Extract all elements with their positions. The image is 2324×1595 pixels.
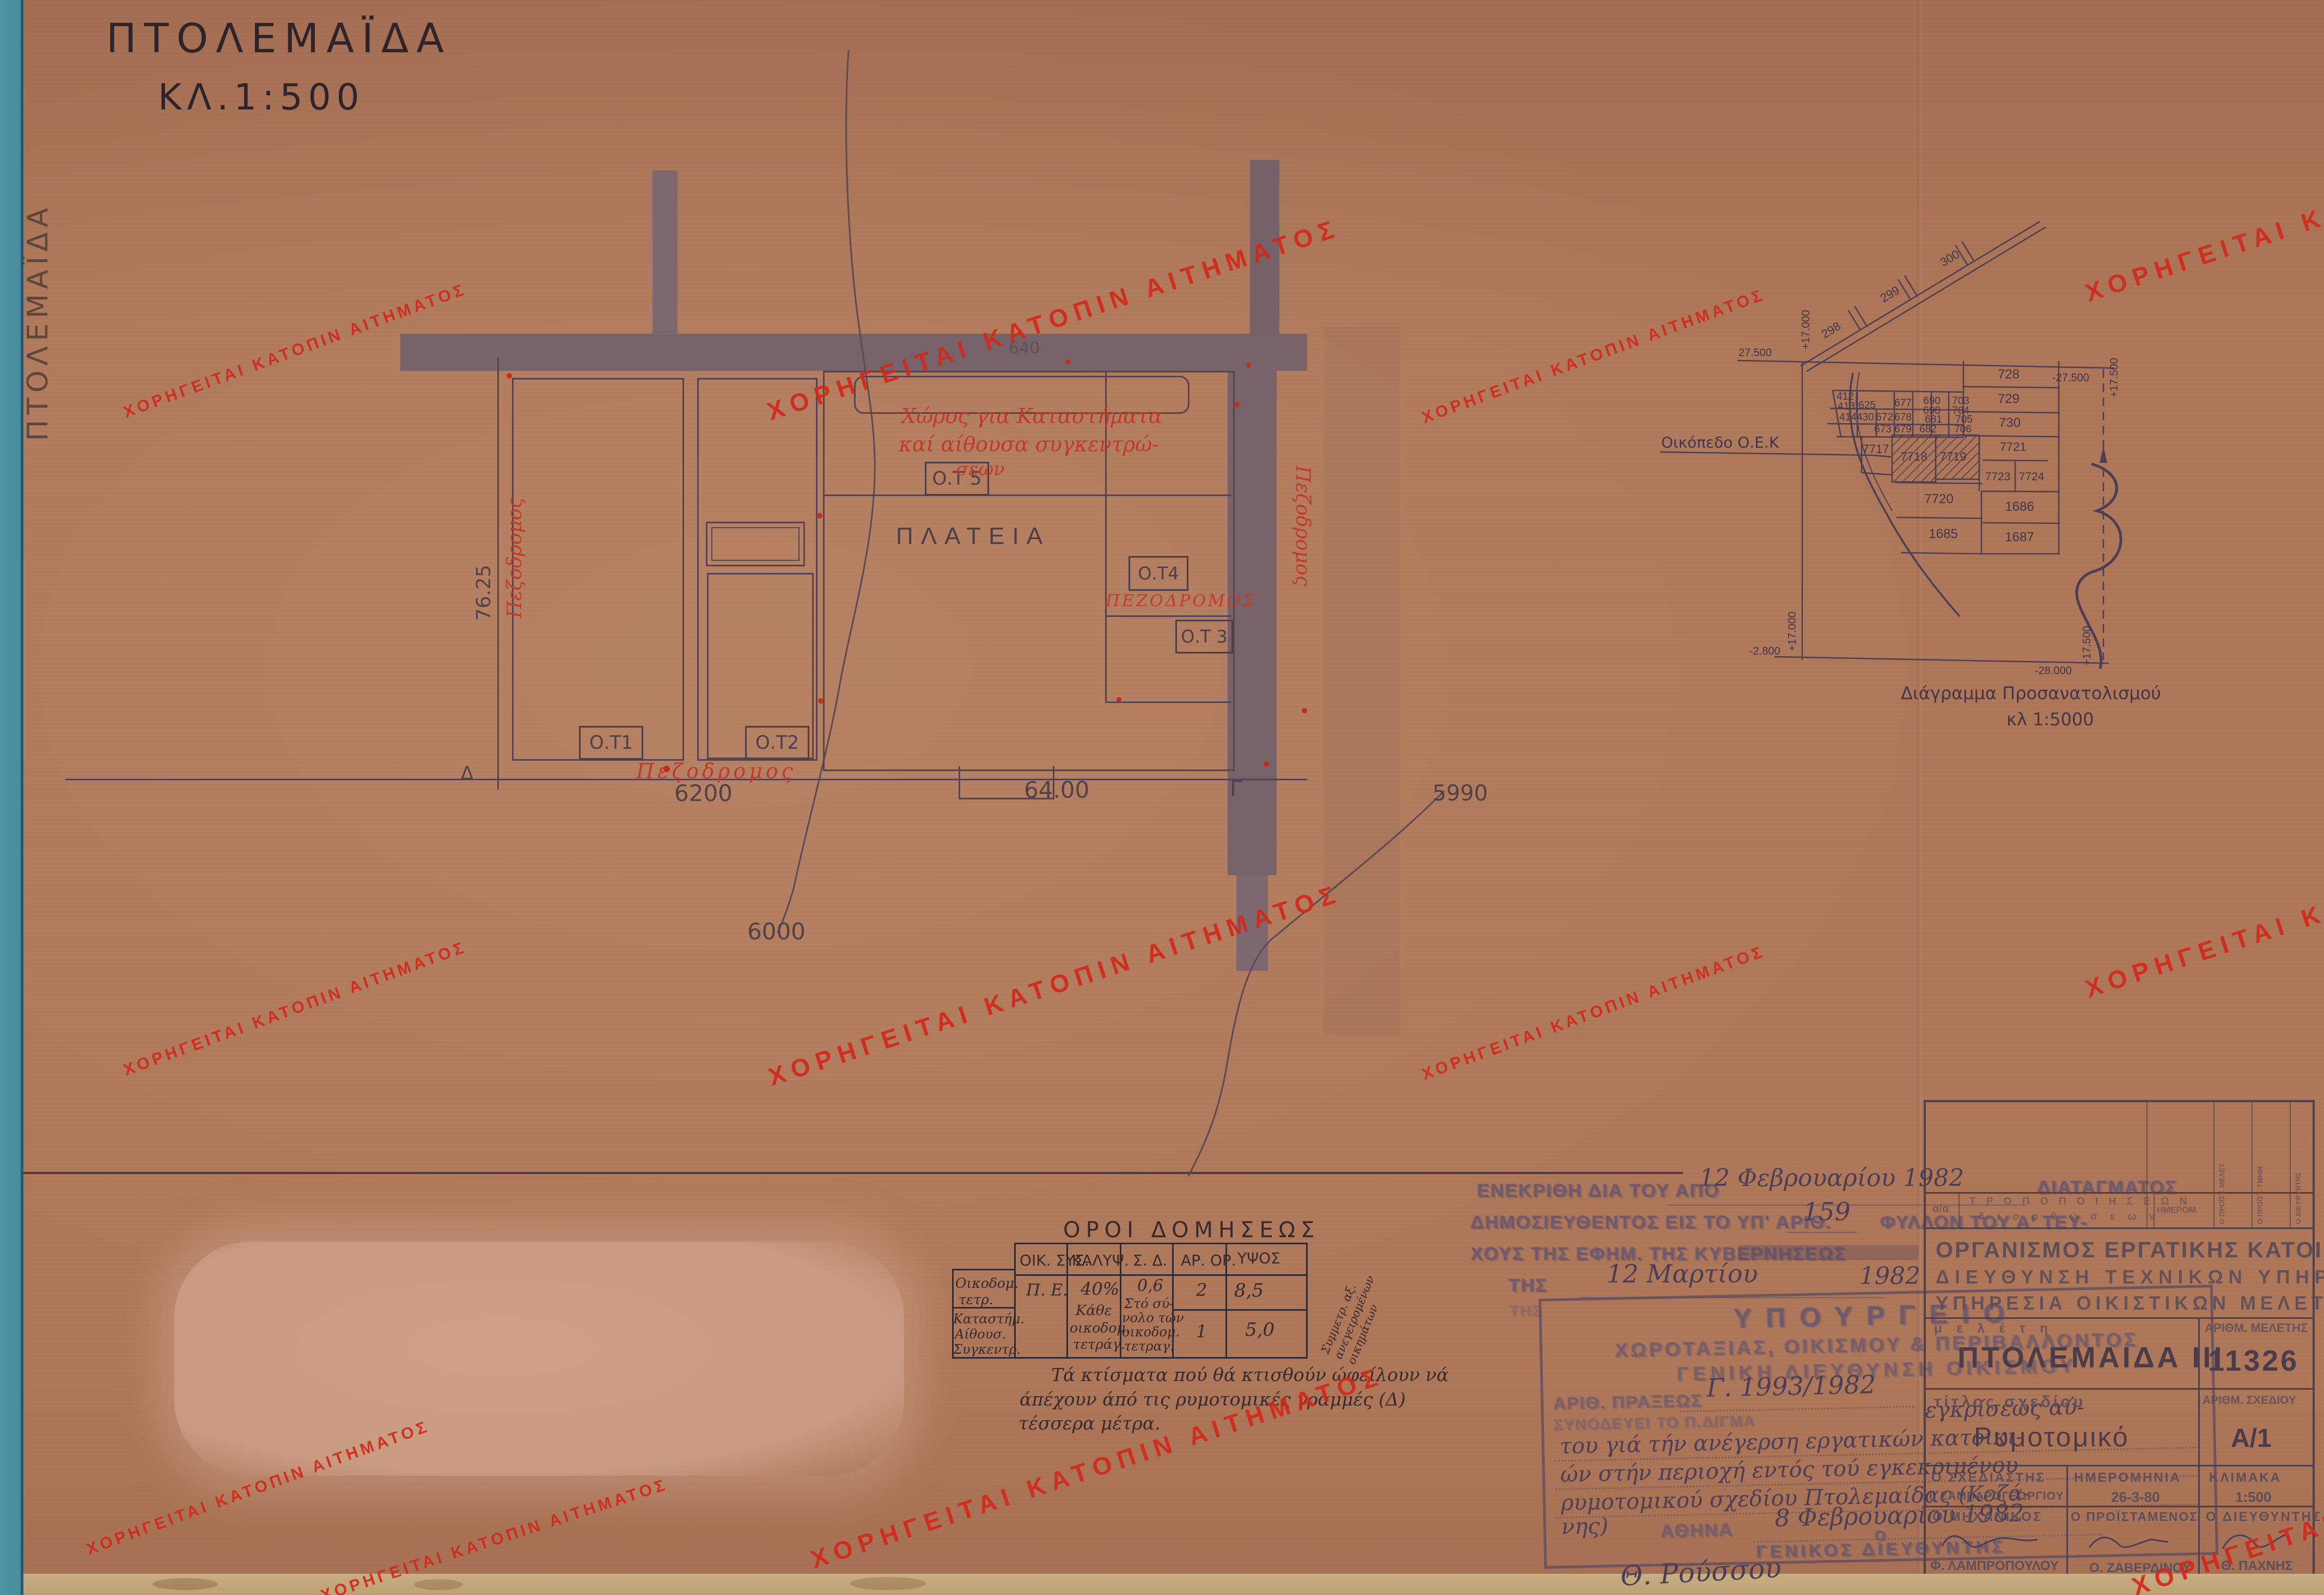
parcel-number: 7720: [1924, 492, 1953, 506]
terms-table-line: [1172, 1309, 1308, 1311]
tb-org1: ΟΡΓΑΝΙΣΜΟΣ ΕΡΓΑΤΙΚΗΣ ΚΑΤΟΙΚΙΑΣ: [1936, 1237, 2324, 1263]
parcel-number: 672: [1876, 412, 1893, 423]
red-note-line3: σεων: [956, 459, 1005, 480]
terms-cell-kalyps: Κάθε: [1076, 1303, 1112, 1319]
terms-cell-floors-r1: 2: [1196, 1280, 1207, 1300]
block-inner-horizontal-1: [1105, 615, 1231, 617]
building-footprint-small: [706, 522, 805, 566]
terms-table-title: ΟΡΟΙ ΔΟΜΗΣΕΩΣ: [1063, 1218, 1320, 1243]
pedestrian-left-label: Πεζοδρομος: [504, 497, 526, 618]
parcel-number: 729: [1998, 392, 2020, 406]
parcel-number: 7719: [1940, 450, 1967, 463]
terms-col-header: ΚΑΛΥΨ.: [1072, 1251, 1129, 1269]
terms-rowheader: Συγκεντρ.: [953, 1342, 1021, 1357]
tb-line: [1926, 1227, 2313, 1229]
edge-blob: [153, 1578, 218, 1590]
red-dot: [1264, 761, 1269, 767]
terms-cell-height-r1: 8,5: [1234, 1280, 1264, 1301]
parcel-number: 673: [1874, 424, 1892, 435]
tb-line: [2290, 1102, 2291, 1227]
road-label: 299: [1878, 283, 1902, 305]
approval-underline2: [1786, 1232, 1857, 1233]
tb-scale: 1:500: [2235, 1489, 2272, 1506]
block-inner-horizontal-2: [1105, 701, 1231, 703]
ministry-hand-praxis: Γ. 1993/1982: [1706, 1370, 1876, 1402]
marker-delta: Δ: [461, 762, 473, 784]
orientation-caption: Διάγραμμα Προσανατολισμού: [1901, 683, 2161, 704]
terms-table-line: [952, 1357, 1308, 1359]
coord-label: +17.500: [2081, 626, 2093, 665]
tb-line: [1926, 1388, 2313, 1390]
terms-table-line: [1306, 1243, 1308, 1359]
page-title: ΠΤΟΛΕΜΑΪΔΑ: [106, 15, 452, 62]
terms-cell-sd: οικοδομ.: [1122, 1324, 1180, 1340]
parcel-number: 7721: [2000, 440, 2027, 454]
terms-rowheader: Καταστήμ.: [953, 1311, 1024, 1327]
parcel-number: 7717: [1863, 442, 1889, 456]
coord-label: -27.500: [2052, 372, 2089, 384]
orientation-scale: κλ 1:5000: [2006, 709, 2094, 730]
approval-line2a: ΔΗΜΟΣΙΕΥΘΕΝΤΟΣ ΕΙΣ ΤΟ ΥΠ' ΑΡΙΘ.: [1471, 1212, 1832, 1233]
road-label: 298: [1819, 319, 1843, 341]
tb-designer: Ι. ΖΑΜΠΑΡΟΓΕΩΡΓΙΟΥ: [1929, 1490, 2064, 1503]
tb-line: [1926, 1192, 2313, 1194]
terms-note-line1: Τά κτίσματα πού θά κτισθούν ώφείλουν νά: [1051, 1364, 1449, 1385]
coord-label: -2.800: [1749, 645, 1780, 657]
red-dot: [818, 698, 824, 704]
tb-vlabel-1: Ο ΠΡΟΪΣΤ. ΜΕΛΕΤ.: [2218, 1162, 2226, 1224]
terms-col-header: ΑΡ. ΟΡ.: [1181, 1251, 1236, 1269]
pedestrian-right-label: Πεζοδρομος: [1291, 466, 1314, 586]
terms-table-line: [1014, 1274, 1308, 1276]
terms-rowheader: τετρ.: [959, 1292, 993, 1307]
parcel-number: 1685: [1929, 527, 1957, 541]
tb-engineer: Φ. ΛΑΜΠΡΟΠΟΥΛΟΥ: [1930, 1559, 2059, 1574]
parcel-number: 414: [1839, 412, 1857, 423]
tb-designer-label: Ο ΣΧΕΔΙΑΣΤΗΣ: [1931, 1470, 2046, 1486]
terms-rowheader: Οικοδομ.: [955, 1275, 1018, 1291]
terms-col-header: ΥΨΟΣ: [1237, 1249, 1280, 1267]
block-label-ot3: Ο.Τ 3: [1175, 620, 1233, 653]
tb-plan-title-label: τίτλος σχεδίου: [1934, 1393, 2085, 1411]
tb-plan-no-label: ΑΡΙΘΜ. ΣΧΕΔΙΟΥ: [2203, 1394, 2296, 1407]
tb-line: [1926, 1317, 2313, 1319]
parcel-number: 706: [1954, 424, 1972, 435]
pedestrian-ot3-label: ΠΕΖΟΔΡΟΜΟΣ: [1106, 591, 1256, 610]
red-dot: [1246, 363, 1251, 368]
coord-label: -28.000: [2035, 665, 2072, 677]
tb-mod2: δ ι ο ρ θ ώ σ ε ω ν: [1978, 1211, 2160, 1223]
page-scale: ΚΛ.1:500: [158, 76, 365, 118]
title-block: α/α Τ Ρ Ο Π Ο Π Ο Ι Η Σ Ε Ω Ν δ ι ο ρ θ …: [1924, 1100, 2315, 1581]
parcel-number: 7724: [2019, 470, 2045, 483]
edge-blob: [850, 1577, 926, 1590]
red-dot: [1234, 402, 1240, 407]
parcel-number: 1686: [2005, 499, 2034, 514]
edge-blob: [414, 1579, 463, 1590]
tb-line: [2198, 1317, 2200, 1465]
oek-parcel-label: Οικόπεδο Ο.Ε.Κ: [1661, 433, 1779, 451]
red-dot: [1117, 697, 1121, 702]
tb-study-no-label: ΑΡΙΘΜ. ΜΕΛΕΤΗΣ: [2205, 1321, 2308, 1335]
terms-cell-sd: Στό σύ-: [1124, 1296, 1174, 1311]
tb-vlabel-3: Ο ΔΙΕΥΘΥΝΤΗΣ: [2294, 1172, 2302, 1224]
tb-study-label: μ ε λ έ τ η: [1934, 1321, 2053, 1336]
dim-5990: 5990: [1432, 781, 1488, 806]
coord-label: +17.000: [1786, 612, 1798, 651]
tb-line: [1926, 1465, 2313, 1466]
coord-label: +17.500: [2108, 358, 2120, 398]
tb-study-no: 11326: [2208, 1344, 2299, 1378]
terms-cell-oiksys: Π. Ε.: [1026, 1281, 1068, 1300]
tb-date-label: ΗΜΕΡΟΜΗΝΙΑ: [2074, 1470, 2181, 1486]
dim-6000: 6000: [747, 918, 806, 945]
parcel-number: 430: [1857, 412, 1874, 423]
red-note-line1: Χώρος για Καταστήματα: [901, 404, 1162, 428]
left-scan-edge: [0, 0, 23, 1595]
tb-line: [2213, 1102, 2215, 1227]
tb-plan-no: Α/1: [2231, 1423, 2272, 1453]
coord-label: 27.500: [1739, 347, 1772, 359]
dim-7625: 76.25: [473, 565, 495, 621]
parcel-number: 682: [1919, 424, 1937, 435]
terms-cell-sd: νολο τών: [1122, 1310, 1184, 1325]
tb-line: [2146, 1102, 2148, 1227]
terms-col-header: Σ. Δ.: [1133, 1251, 1168, 1269]
approval-smear: [1739, 1245, 1918, 1260]
ministry-dotline: [1680, 1406, 1914, 1413]
terms-note-line3: τέσσερα μέτρα.: [1018, 1413, 1161, 1434]
terms-table-line: [952, 1269, 1016, 1270]
tb-aa: α/α: [1932, 1203, 1949, 1215]
coord-label: +17.000: [1800, 310, 1812, 350]
marker-gamma: Γ: [1230, 777, 1242, 802]
parcel-number: 625: [1858, 400, 1876, 411]
plateia-label: ΠΛΑΤΕΙΑ: [896, 523, 1050, 550]
terms-cell-sd: τετραγ.: [1124, 1339, 1174, 1354]
block-label-ot2: Ο.Τ2: [745, 726, 809, 760]
approval-hand-number: 159: [1803, 1197, 1851, 1226]
dim-6400: 64.00: [1024, 777, 1089, 803]
terms-cell-height-r2: 5,0: [1245, 1319, 1274, 1341]
terms-cell-kalyps: 40%: [1081, 1279, 1119, 1299]
tb-study-name: ΠΤΟΛΕΜΑΙΔΑ ΙΙΙ: [1957, 1341, 2224, 1374]
terms-cell-floors-r2: 1: [1196, 1321, 1207, 1342]
approval-hand-date2: 12 Μαρτίου: [1607, 1259, 1758, 1288]
red-dot: [817, 513, 822, 518]
tb-line: [1926, 1506, 2313, 1507]
terms-cell-kalyps: οικοδομ.: [1070, 1320, 1130, 1336]
parcel-number: 677: [1894, 398, 1912, 409]
tb-org3: ΥΠΗΡΕΣΙΑ ΟΙΚΙΣΤΙΚΩΝ ΜΕΛΕΤΩΝ: [1936, 1293, 2324, 1315]
parcel-number: 1687: [2005, 530, 2034, 545]
red-dot: [507, 373, 512, 378]
block-label-ot4: Ο.Τ4: [1129, 556, 1188, 591]
parcel-number: 413: [1838, 401, 1855, 412]
margin-note-vertical: ΠΤΟΛΕΜΑΪΔΑ: [22, 203, 54, 441]
parcel-number: 7718: [1901, 450, 1927, 463]
red-note-line2: καί αίθουσα συγκεντρώ-: [899, 432, 1159, 456]
parcel-number: 7723: [1985, 470, 2011, 483]
parcel-number: 730: [1999, 415, 2021, 430]
tb-org2: ΔΙΕΥΘΥΝΣΗ ΤΕΧΝΙΚΩΝ ΥΠΗΡΕΣΙΩΝ: [1936, 1267, 2324, 1288]
red-dot: [663, 766, 670, 772]
dim-6200: 6200: [674, 780, 733, 806]
block-label-ot1: Ο.Τ1: [579, 726, 643, 760]
approval-hand-year2: 1982: [1859, 1262, 1920, 1290]
terms-table-line: [1014, 1243, 1308, 1244]
block-ot5-bottom-line: [823, 494, 1231, 496]
parcel-number: 728: [1998, 367, 2020, 382]
scanned-drawing-sheet: ΠΤΟΛΕΜΑΪΔΑ ΚΛ.1:500 ΠΤΟΛΕΜΑΪΔΑ Ο.Τ1 Ο.Τ2…: [0, 0, 2324, 1595]
tb-date: 26-3-80: [2111, 1489, 2160, 1506]
red-dot: [1065, 359, 1070, 364]
tb-line: [1959, 1192, 1960, 1227]
parcel-number: 679: [1894, 424, 1912, 435]
tb-line: [2252, 1102, 2253, 1227]
tb-scale-label: ΚΛΙΜΑΚΑ: [2209, 1470, 2282, 1486]
terms-rowheader: Αίθουσ.: [955, 1327, 1006, 1342]
tb-plan-title: Ρυμοτομικό: [1974, 1421, 2130, 1453]
terms-cell-kalyps: τετράγ.: [1073, 1336, 1125, 1352]
approval-line1a: ΕΝΕΚΡΙΘΗ ΔΙΑ ΤΟΥ ΑΠΟ: [1477, 1181, 1720, 1202]
approval-ghost-text: ΤΗΣ: [1510, 1303, 1542, 1320]
terms-cell-sd: 0,6: [1137, 1276, 1163, 1295]
parcel-number: 678: [1894, 412, 1912, 423]
boundary-left-vertical: [497, 357, 499, 790]
tb-date-header: ΗΜΕΡΟΜ.: [2157, 1206, 2198, 1215]
tb-vlabel-2: Ο ΠΡΟΪΣΤ. ΤΜΗΜ.: [2256, 1164, 2264, 1224]
approval-line4: ΤΗΣ: [1509, 1275, 1548, 1297]
block-ot1-outline: [512, 378, 684, 761]
red-dot: [1302, 708, 1307, 713]
